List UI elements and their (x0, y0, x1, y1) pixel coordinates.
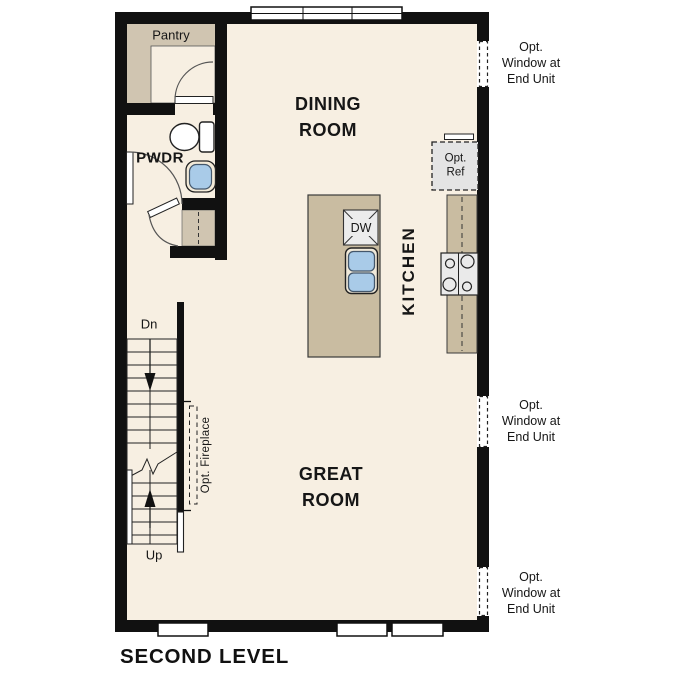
opt-window-note-1-line1: Opt. (502, 39, 560, 55)
wall-right (477, 12, 489, 632)
dining-room-label: DINING ROOM (295, 91, 361, 143)
opt-window-note-1-line2: Window at (502, 55, 560, 71)
stair-railing-left (127, 470, 132, 544)
plan-title: SECOND LEVEL (120, 645, 289, 669)
stairs-down-label: Dn (141, 317, 158, 332)
hall-closet (182, 210, 215, 246)
opt-window-note-1: Opt. Window at End Unit (502, 39, 560, 87)
opt-ref-label-line2: Ref (445, 166, 467, 181)
opt-window-note-3-line3: End Unit (502, 601, 560, 617)
dining-room-label-line1: DINING (295, 91, 361, 117)
toilet-icon (170, 122, 214, 152)
opt-window-marker-2 (477, 396, 489, 447)
pwdr-room-label: PWDR (136, 150, 184, 167)
pwdr-sink-icon (186, 161, 216, 192)
stair-railing-right (178, 512, 184, 552)
opt-fireplace-label: Opt. Fireplace (200, 417, 212, 493)
opt-window-note-3: Opt. Window at End Unit (502, 569, 560, 617)
opt-ref-label: Opt. Ref (445, 151, 467, 180)
stairs (127, 339, 184, 552)
wall-stair-right (177, 302, 184, 512)
opt-ref-label-line1: Opt. (445, 151, 467, 166)
opt-window-note-2-line2: Window at (502, 413, 560, 429)
opt-window-note-3-line1: Opt. (502, 569, 560, 585)
opt-window-note-2-line1: Opt. (502, 397, 560, 413)
wall-pantry-right (215, 24, 227, 260)
opt-window-note-2: Opt. Window at End Unit (502, 397, 560, 445)
great-room-label: GREAT ROOM (299, 461, 363, 513)
island-sink-icon (346, 248, 378, 294)
dining-room-label-line2: ROOM (295, 117, 361, 143)
floorplan-canvas: Pantry PWDR DINING ROOM GREAT ROOM KITCH… (0, 0, 687, 687)
window-top (251, 7, 402, 20)
opt-window-note-2-line3: End Unit (502, 429, 560, 445)
dishwasher-label: DW (351, 221, 372, 235)
wall-pwdr-bottom (182, 198, 227, 210)
opt-window-marker-1 (477, 41, 489, 87)
opt-window-note-3-line2: Window at (502, 585, 560, 601)
opt-window-note-1-line3: End Unit (502, 71, 560, 87)
wall-pantry-corner (213, 103, 227, 115)
wall-pantry-bottom (115, 103, 175, 115)
wall-closet-bottom (170, 246, 227, 258)
kitchen-room-label: KITCHEN (399, 226, 419, 316)
great-room-label-line2: ROOM (299, 487, 363, 513)
great-room-label-line1: GREAT (299, 461, 363, 487)
stairs-up-label: Up (146, 548, 163, 563)
pantry-room-label: Pantry (152, 27, 190, 42)
opt-window-marker-3 (477, 567, 489, 616)
cooktop-icon (441, 253, 478, 295)
